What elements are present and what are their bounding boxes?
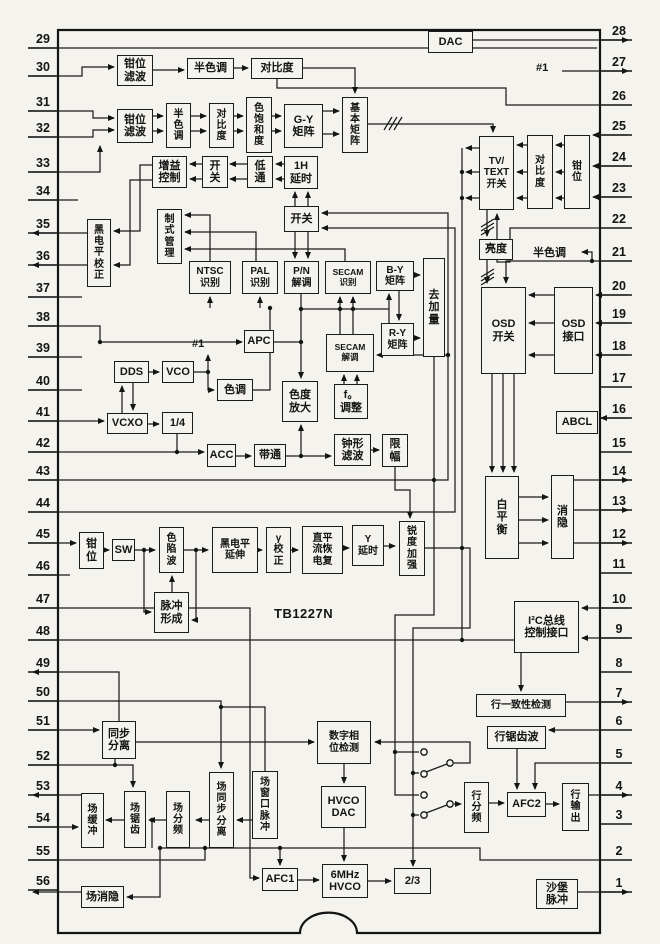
pin-4: 4 [606,779,632,794]
block-tint: 色调 [217,379,253,401]
pin-7: 7 [606,686,632,701]
pin-52: 52 [30,749,56,764]
block-chroma-amp: 色度 放大 [282,381,318,422]
block-divider-quarter: 1/4 [162,412,193,434]
pin-22: 22 [606,212,632,227]
block-vcxo: VCXO [107,413,148,434]
block-acc: ACC [207,444,236,467]
block-halftone-2: 半 色 调 [166,103,191,148]
pin-19: 19 [606,307,632,322]
pin-51: 51 [30,714,56,729]
pin-50: 50 [30,685,56,700]
block-bandpass: 带通 [254,444,286,467]
pin-29: 29 [30,32,56,47]
block-v-blanking: 场消隐 [81,886,124,908]
block-base-matrix: 基 本 矩 阵 [342,97,368,153]
pin-35: 35 [30,217,56,232]
block-clamp-filter-1: 钳位 滤波 [117,55,153,86]
pin-26: 26 [606,89,632,104]
block-gamma-correct: γ 校 正 [266,527,291,573]
pin-37: 37 [30,281,56,296]
pin-27: 27 [606,55,632,70]
block-black-stretch: 黑电平 延伸 [212,527,258,573]
pin-11: 11 [606,557,632,572]
block-h-divider: 行 分 频 [464,782,489,833]
pin-12: 12 [606,527,632,542]
block-afc1: AFC1 [262,868,298,891]
block-clamp-45: 钳 位 [79,532,104,569]
block-black-level-correct: 黑 电 平 校 正 [87,219,111,287]
block-white-balance: 白 平 衡 [485,476,519,559]
pin-8: 8 [606,656,632,671]
block-osd-switch: OSD 开关 [481,287,526,374]
block-dds: DDS [114,361,149,383]
block-sw: SW [112,539,135,561]
pin-40: 40 [30,374,56,389]
pin-17: 17 [606,371,632,386]
pin-31: 31 [30,95,56,110]
pin-56: 56 [30,874,56,889]
block-limiter: 限 幅 [382,434,408,467]
block-blanking: 消 隐 [551,475,574,559]
pin-6: 6 [606,714,632,729]
pin-46: 46 [30,559,56,574]
block-gy-matrix: G-Y 矩阵 [284,104,323,148]
block-1h-delay: 1H 延时 [284,156,318,189]
pin-32: 32 [30,121,56,136]
pin-34: 34 [30,184,56,199]
pin-18: 18 [606,339,632,354]
pin-16: 16 [606,402,632,417]
block-lowpass: 低 通 [247,156,273,188]
block-ntsc-detect: NTSC 识别 [189,261,231,294]
block-clamp-3: 钳 位 [564,135,590,209]
pin-25: 25 [606,119,632,134]
block-v-sawtooth: 场 锯 齿 [124,791,146,848]
block-v-divider: 场 分 频 [166,791,190,848]
block-standard-manager: 制 式 管 理 [157,209,182,264]
halftone-input-label: 半色调 [533,244,566,260]
block-ry-matrix: R-Y 矩阵 [381,323,414,356]
pin-55: 55 [30,844,56,859]
block-pn-demod: P/N 解调 [284,261,319,294]
pin-5: 5 [606,747,632,762]
pin-33: 33 [30,156,56,171]
block-hvco-dac: HVCO DAC [321,786,366,828]
pin-15: 15 [606,436,632,451]
block-h-output: 行 输 出 [562,783,589,831]
block-tv-text-switch: TV/ TEXT 开关 [479,136,514,210]
ref2-label: #1 [536,62,548,74]
pin-48: 48 [30,624,56,639]
block-secam-detect: SECAM 识别 [325,261,371,294]
pin-49: 49 [30,656,56,671]
pin-41: 41 [30,405,56,420]
block-contrast-1: 对比度 [251,58,303,79]
pin-36: 36 [30,249,56,264]
block-saturation: 色 饱 和 度 [246,97,272,153]
pin-53: 53 [30,779,56,794]
block-pulse-forming: 脉冲 形成 [154,592,189,633]
block-bell-filter: 钟形 滤波 [334,434,371,466]
pin-14: 14 [606,464,632,479]
block-6mhz-hvco: 6MHz HVCO [322,864,368,898]
block-contrast-3: 对 比 度 [527,135,553,209]
block-sharpness: 锐 度 加 强 [399,521,425,576]
block-contrast-2: 对 比 度 [209,103,234,148]
block-switch-2: 开关 [284,206,319,232]
block-secam-demod: SECAM 解调 [326,334,374,372]
pin-24: 24 [606,150,632,165]
pin-30: 30 [30,60,56,75]
block-f0-adjust: f。 调整 [334,384,368,419]
pin-38: 38 [30,310,56,325]
block-pal-detect: PAL 识别 [242,261,278,294]
block-osd-interface: OSD 接口 [554,287,593,374]
block-by-matrix: B-Y 矩阵 [376,261,414,291]
block-v-buffer: 场 缓 冲 [81,793,104,848]
block-divider-two-thirds: 2/3 [394,868,431,894]
pin-47: 47 [30,592,56,607]
block-brightness: 亮度 [479,239,513,260]
pin-39: 39 [30,341,56,356]
block-halftone-1: 半色调 [187,58,234,79]
pin-21: 21 [606,245,632,260]
pin-2: 2 [606,844,632,859]
pin-20: 20 [606,279,632,294]
block-apc: APC [244,330,274,353]
block-digital-phase-detect: 数字相 位检测 [317,721,371,764]
pin-43: 43 [30,464,56,479]
pin-1: 1 [606,876,632,891]
block-h-coincidence-detect: 行一致性检测 [476,694,566,717]
block-dac: DAC [428,31,473,53]
pin-13: 13 [606,494,632,509]
block-clamp-filter-2: 钳位 滤波 [117,109,153,143]
ref1-label: #1 [192,338,204,350]
pin-44: 44 [30,496,56,511]
part-number: TB1227N [274,606,333,621]
ic-block-diagram: 29 30 31 32 33 34 35 36 37 38 39 40 41 4… [0,0,660,944]
block-afc2: AFC2 [507,792,546,817]
block-sync-separator: 同步 分离 [102,721,136,759]
block-chroma-trap: 色 陷 波 [159,527,184,573]
pin-42: 42 [30,436,56,451]
block-vco: VCO [162,361,194,383]
block-v-sync-separator: 场 同 步 分 离 [209,772,234,848]
pin-3: 3 [606,808,632,823]
switch-contacts [421,749,453,818]
block-gain-control: 增益 控制 [152,156,187,188]
block-i2c-bus-interface: I²C总线 控制接口 [514,601,579,653]
block-switch-1: 开 关 [202,156,228,188]
pin-28: 28 [606,24,632,39]
block-dc-restore: 直平 流恢 电复 [302,526,343,574]
block-y-delay: Y 延时 [352,525,384,566]
block-abcl: ABCL [556,411,598,434]
pin-9: 9 [606,622,632,637]
block-deemphasis: 去 加 量 [423,258,445,357]
pin-23: 23 [606,181,632,196]
pin-10: 10 [606,592,632,607]
block-v-window-pulse: 场 窗 口 脉 冲 [252,771,278,839]
pin-54: 54 [30,811,56,826]
pin-45: 45 [30,527,56,542]
block-sandcastle-pulse: 沙堡 脉冲 [536,879,578,909]
block-h-sawtooth: 行锯齿波 [487,726,546,749]
